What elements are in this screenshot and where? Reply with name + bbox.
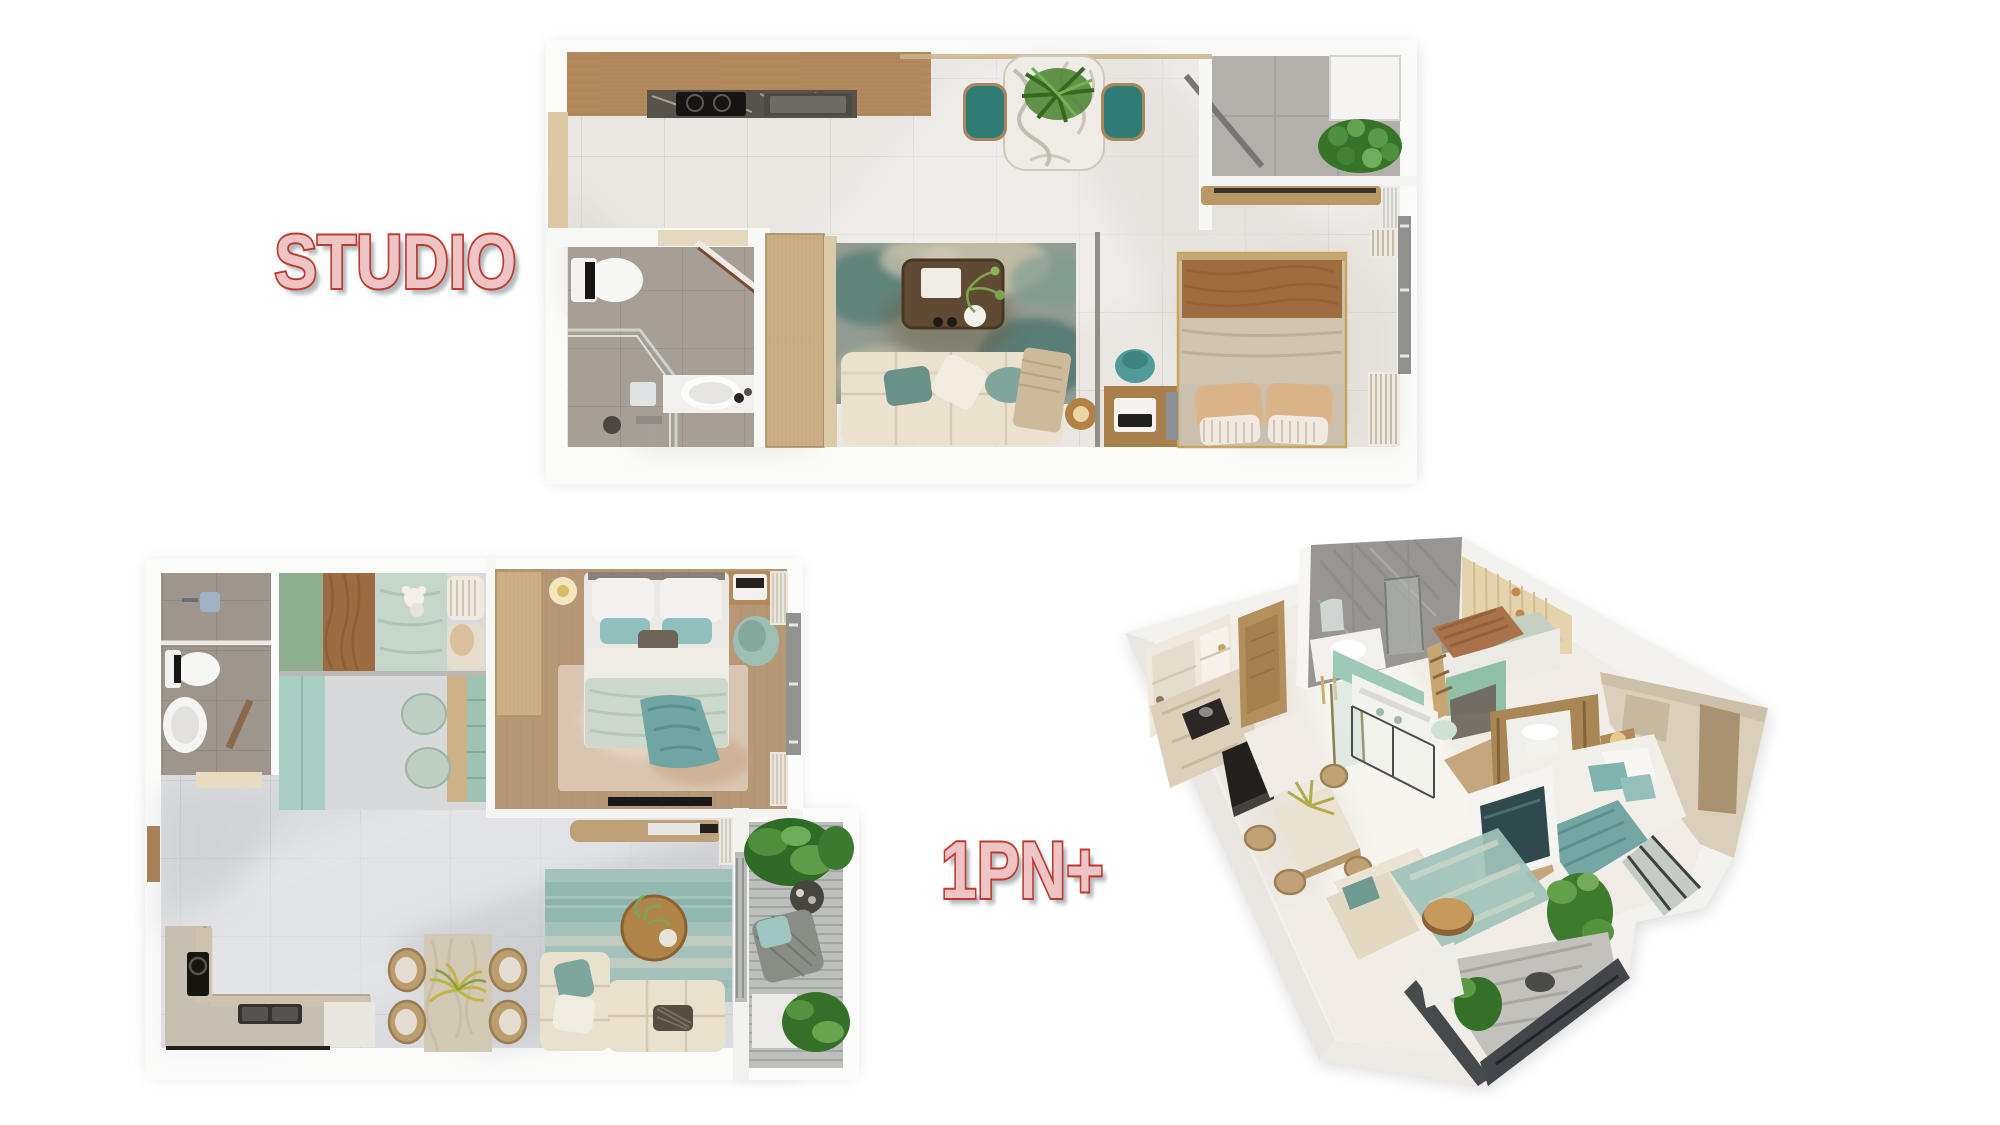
svg-text:1PN+: 1PN+ — [941, 825, 1104, 916]
svg-text:STUDIO: STUDIO — [274, 219, 516, 304]
